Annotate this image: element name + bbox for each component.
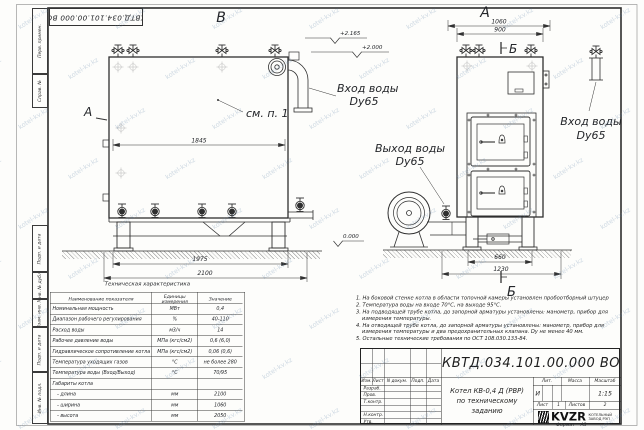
front-support (463, 217, 537, 250)
margin-label: Инв. № подл. (38, 382, 43, 413)
top-stamp-box: КВТД.034.101.00.000 ВО (49, 8, 143, 26)
doc-number: КВТД.034.101.00.000 ВО (441, 349, 621, 377)
tech-table-cell: Габариты котла (51, 378, 152, 389)
tech-table-cell: Номинальная мощность (51, 303, 152, 314)
margin-box-sprav-no: Справ. № (32, 74, 48, 108)
hdr-list: Лист (372, 377, 384, 385)
tech-table-cell: мм (152, 399, 198, 410)
margin-label: Перв. примен. (38, 24, 43, 58)
side-view (62, 45, 322, 251)
tech-table-cell: Температура уходящих газов (51, 357, 152, 368)
tech-table-cell: - длина (51, 389, 152, 400)
margin-box-podp-data-2: Подп. и дата (32, 327, 48, 372)
see-note-label: см. п. 1 (246, 107, 289, 120)
elevation-label-0: 0.000 (343, 234, 359, 240)
inlet-label-1-size: Dy65 (350, 95, 379, 108)
product-title: Котел КВ-0,4 Д (РВР) по техническому зад… (441, 377, 533, 425)
elevation-label-1: +2.165 (340, 31, 361, 37)
sign-row-prov: Пров. (361, 392, 384, 399)
company-name-line2: ЗАВОД РЭП (589, 417, 610, 422)
outlet-label-size: Dy65 (396, 155, 425, 168)
side-support (109, 218, 290, 251)
tech-table-cell: 0,6 (6,0) (198, 335, 243, 346)
margin-box-podp-data-1: Подп. и дата (32, 225, 48, 272)
tech-table-cell: Расход воды (51, 325, 152, 336)
inlet-flange (543, 71, 549, 88)
dim-1845: 1845 (191, 138, 206, 145)
flange-icon (269, 59, 286, 76)
sign-row-nkontr: Н.контр. (361, 412, 384, 419)
note-line: 3. На подводящей трубе котла, до запорно… (356, 309, 621, 321)
outlet-valve (442, 206, 450, 220)
valve-icon (216, 45, 228, 57)
note-line: 1. На боковой стенке котла в области топ… (356, 295, 621, 301)
dim-2100: 2100 (197, 270, 212, 277)
upper-door (471, 117, 530, 166)
dim-1060: 1060 (491, 19, 506, 26)
top-hatch (508, 72, 534, 94)
product-title-line2: по техническому заданию (441, 396, 533, 416)
dimensions (96, 20, 596, 283)
tech-table-cell: Гидравлическое сопротивление котла (51, 346, 152, 357)
tech-table: Наименование показателя Единицы измерени… (50, 292, 245, 421)
tech-table-cell (198, 378, 243, 389)
lit-label: Лит. (533, 377, 561, 385)
lower-door (471, 171, 530, 216)
tech-table-cell: 2100 (198, 389, 243, 400)
company-emblem-icon (538, 411, 549, 423)
note-line: 5. Остальные технические требования по О… (356, 336, 621, 342)
tech-table-cell: мм (152, 389, 198, 400)
drawing-sheet: В А А Б Б см. п. 1 Вход воды Dy65 Выход … (0, 0, 644, 430)
drawing-labels: В А А Б Б см. п. 1 Вход воды Dy65 Выход … (83, 5, 622, 300)
top-stamp-number: КВТД.034.101.00.000 ВО (49, 13, 143, 21)
tech-table-cell: МПа (кгс/см2) (152, 346, 198, 357)
margin-box-perv-primen: Перв. примен. (32, 8, 48, 74)
tech-table-cell: 14 (198, 325, 243, 336)
margin-label: Подп. и дата (38, 334, 43, 365)
scale-label: Масштаб (589, 377, 621, 385)
tech-table-cell: 70/95 (198, 367, 243, 378)
view-arrow-label: А (83, 105, 92, 119)
dim-1230: 1230 (493, 266, 508, 273)
margin-label: Подп. и дата (38, 233, 43, 264)
inlet-label-2-size: Dy65 (577, 129, 606, 142)
margin-box-inv-dubl: Инв. № дубл. (32, 272, 48, 299)
tech-table-title: Техническая характеристика (50, 281, 245, 287)
tech-table-cell: °С (152, 357, 198, 368)
tech-table-cell: 40-110 (198, 314, 243, 325)
margin-box-vzam-inv: Взам. инв. № (32, 299, 48, 327)
dim-900: 900 (494, 27, 506, 34)
tech-table-cell: МПа (кгс/см2) (152, 335, 198, 346)
sign-row-utv: Утв. (361, 419, 384, 426)
valve-icon (269, 45, 281, 57)
dim-1975: 1975 (192, 256, 207, 263)
valve-icon (112, 45, 124, 57)
inlet-label-1: Вход воды (337, 82, 399, 95)
tech-table-cell: - ширина (51, 399, 152, 410)
tech-table-cell: 2050 (198, 410, 243, 421)
format-label-row: Формат А3 (556, 422, 622, 428)
title-block: КВТД.034.101.00.000 ВО Котел КВ-0,4 Д (Р… (360, 348, 620, 424)
sheets-label: Листов (565, 401, 589, 409)
inlet-label-2: Вход воды (560, 115, 622, 128)
sheet-label: Лист (533, 401, 552, 409)
note-line: 4. На отводящей трубе котла, до запорной… (356, 322, 621, 334)
notes-list: 1. На боковой стенке котла в области топ… (356, 295, 621, 343)
margin-label: Справ. № (38, 80, 43, 102)
tech-table-cell: Диапазон рабочего регулирования (51, 314, 152, 325)
elevation-label-2: +2.000 (362, 45, 383, 51)
tech-table-cell: МВт (152, 303, 198, 314)
tech-table-cell: 0,4 (198, 303, 243, 314)
sheets-value: 2 (589, 401, 621, 409)
tech-table-cell: не более 280 (198, 357, 243, 368)
format-label: Формат (556, 422, 575, 428)
margin-label: Взам. инв. № (38, 299, 43, 327)
format-value: А3 (580, 422, 586, 428)
tech-table-cell (152, 378, 198, 389)
view-label-a: А (479, 5, 490, 21)
tech-table-cell: 1060 (198, 399, 243, 410)
dim-660: 660 (494, 254, 506, 261)
tech-table-cell: мм (152, 410, 198, 421)
note-line: 2. Температура воды на входе 70°С, на вы… (356, 302, 621, 308)
hdr-data: Дата (426, 377, 441, 385)
scale-value: 1:15 (589, 385, 621, 401)
door-bolts (468, 114, 535, 213)
tech-table-cell: Рабочее давление воды (51, 335, 152, 346)
inlet-pipe-right (589, 46, 603, 80)
margin-label: Инв. № дубл. (38, 272, 43, 299)
view-label-b: В (216, 10, 226, 26)
outlet-label: Выход воды (375, 142, 445, 155)
mass-label: Масса (561, 377, 589, 385)
tech-table-cell: Температура воды (Вход/Выход) (51, 367, 152, 378)
tech-table-cell: м3/ч (152, 325, 198, 336)
lit-value: И (533, 385, 543, 401)
section-label-top: Б (509, 42, 517, 56)
product-title-line1: Котел КВ-0,4 Д (РВР) (450, 386, 524, 396)
tech-table-cell: % (152, 314, 198, 325)
valve-icon (127, 45, 139, 57)
tech-table-cell: - высота (51, 410, 152, 421)
tech-table-cell: °С (152, 367, 198, 378)
blower-fan (388, 192, 466, 247)
company-name: КОТЕЛЬНЫЙ ЗАВОД РЭП (589, 413, 613, 421)
hdr-izm: Изм. (361, 377, 372, 385)
tech-table-cell: 0,06 (0,6) (198, 346, 243, 357)
hdr-ndokum: N докум. (384, 377, 410, 385)
inlet-elbow (288, 52, 312, 112)
hdr-podp: Подп. (410, 377, 426, 385)
margin-box-inv-podl: Инв. № подл. (32, 372, 48, 424)
sheet-value: 1 (552, 401, 565, 409)
